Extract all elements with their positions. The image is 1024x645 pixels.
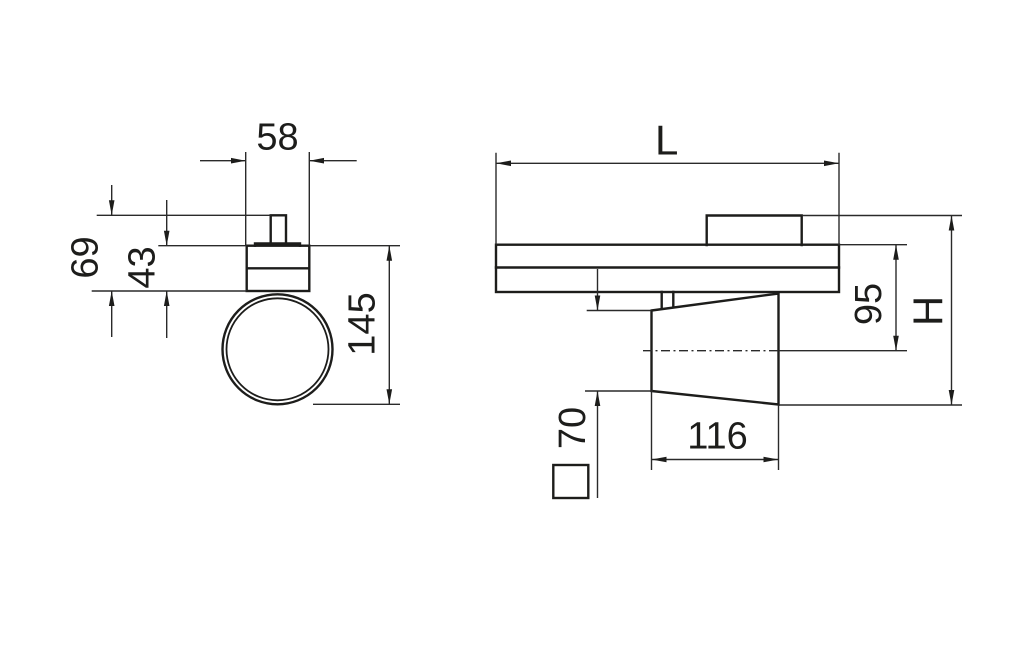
dimension-height-95: 95 bbox=[779, 245, 908, 351]
square-section-symbol bbox=[553, 465, 588, 498]
dimension-arrows bbox=[595, 296, 601, 407]
dimension-label-95: 95 bbox=[848, 283, 890, 325]
dimension-arrows bbox=[164, 231, 170, 306]
extension-lines bbox=[585, 311, 653, 392]
dimension-label-43: 43 bbox=[121, 246, 163, 288]
dimension-label-70: 70 bbox=[552, 407, 594, 449]
dimension-size-70: 70 bbox=[552, 269, 653, 498]
extension-lines bbox=[246, 152, 310, 245]
dimension-label-69: 69 bbox=[64, 236, 106, 278]
stem-lines bbox=[662, 292, 674, 308]
side-view: L 95 H 116 bbox=[496, 117, 962, 498]
wheel-outer-circle bbox=[223, 294, 333, 404]
dimension-length-L: L bbox=[496, 117, 839, 245]
technical-drawing-canvas: 58 69 43 145 bbox=[0, 0, 1024, 645]
dimension-label-58: 58 bbox=[256, 116, 298, 158]
technical-drawing-page: 58 69 43 145 bbox=[0, 0, 1024, 645]
dimension-height-43: 43 bbox=[121, 200, 246, 338]
dimension-arrows bbox=[231, 158, 324, 164]
extension-lines bbox=[92, 215, 271, 291]
extension-lines bbox=[496, 153, 839, 245]
dimension-label-L: L bbox=[655, 117, 678, 164]
mounting-peg-outline bbox=[271, 215, 286, 244]
dimension-arrows bbox=[109, 200, 115, 306]
track-adapter-box-outline bbox=[707, 216, 802, 246]
dimension-label-H: H bbox=[905, 296, 952, 326]
spot-head-outline bbox=[652, 294, 779, 405]
front-view: 58 69 43 145 bbox=[64, 116, 400, 404]
dimension-width-58: 58 bbox=[200, 116, 357, 245]
dimension-label-145: 145 bbox=[341, 292, 383, 355]
dimension-label-116: 116 bbox=[687, 415, 748, 457]
wheel-inner-circle bbox=[227, 298, 329, 400]
